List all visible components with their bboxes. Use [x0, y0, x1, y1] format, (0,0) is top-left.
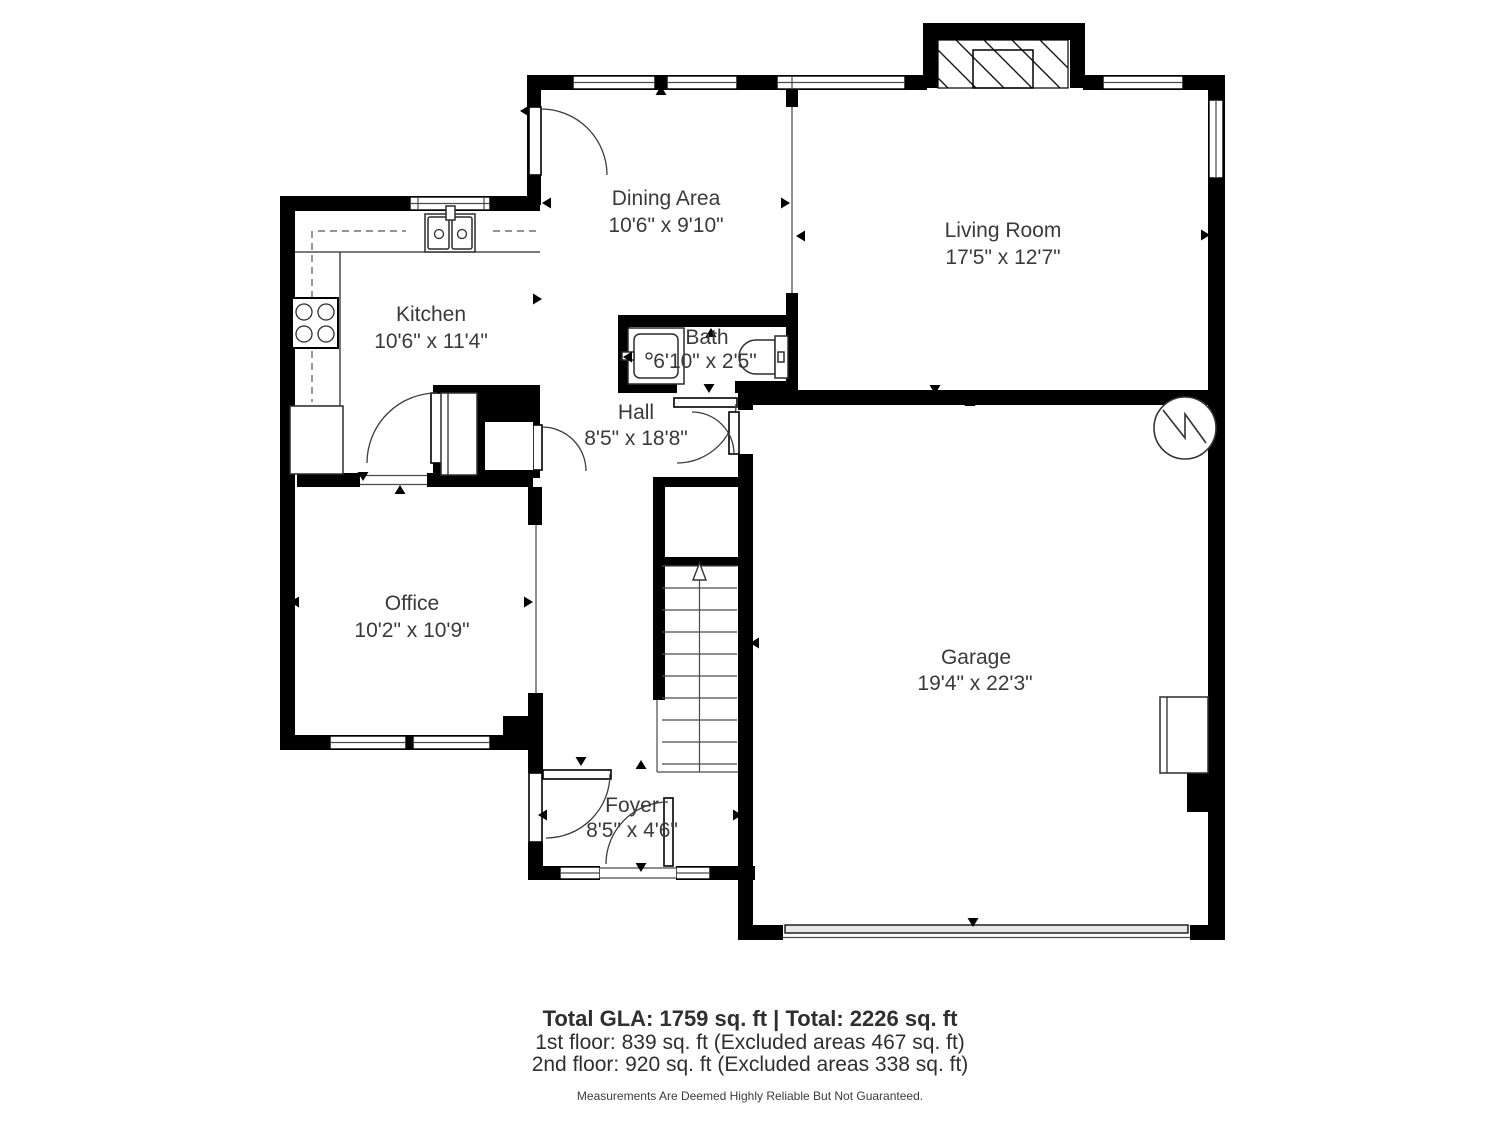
dining-patio-door [529, 107, 607, 175]
room-label-office: Office [385, 592, 439, 615]
garage-service-door [1160, 697, 1208, 773]
floor-plan-page: Dining Area 10'6" x 9'10" Living Room 17… [0, 0, 1500, 1125]
window [1103, 76, 1183, 89]
window [573, 76, 655, 89]
room-dims-kitchen: 10'6" x 11'4" [374, 330, 488, 353]
hall-closet-door [533, 425, 586, 471]
window [330, 736, 406, 749]
sidelite-window [560, 867, 600, 879]
second-floor-area: 2nd floor: 920 sq. ft (Excluded areas 33… [0, 1054, 1500, 1076]
garage-entry-door [692, 412, 739, 454]
kitchen-closet-door [367, 393, 442, 463]
window [667, 76, 737, 89]
room-dims-hall: 8'5" x 18'8" [584, 427, 688, 450]
room-dims-living-room: 17'5" x 12'7" [945, 246, 1060, 269]
room-dims-bath: 6'10" x 2'5" [653, 350, 757, 373]
water-heater-icon [1154, 397, 1216, 459]
room-label-dining-area: Dining Area [612, 187, 721, 210]
window [413, 736, 490, 749]
area-summary: Total GLA: 1759 sq. ft | Total: 2226 sq.… [0, 1006, 1500, 1103]
room-label-garage: Garage [941, 646, 1011, 669]
room-label-kitchen: Kitchen [396, 303, 466, 326]
window [777, 76, 905, 89]
stove-icon [292, 298, 338, 348]
garage-door-icon [783, 925, 1190, 940]
room-label-foyer: Foyer [605, 794, 659, 817]
room-dims-garage: 19'4" x 22'3" [917, 672, 1032, 695]
room-dims-dining-area: 10'6" x 9'10" [608, 214, 723, 237]
room-dims-office: 10'2" x 10'9" [354, 619, 469, 642]
floor-plan-svg: Dining Area 10'6" x 9'10" Living Room 17… [0, 0, 1500, 1125]
first-floor-area: 1st floor: 839 sq. ft (Excluded areas 46… [0, 1032, 1500, 1054]
window [1209, 100, 1223, 178]
disclaimer-text: Measurements Are Deemed Highly Reliable … [0, 1089, 1500, 1103]
room-label-bath: Bath [685, 326, 728, 349]
kitchen-sink-icon [425, 206, 475, 252]
room-dims-foyer: 8'5" x 4'6" [586, 819, 678, 842]
sidelite-window [676, 867, 710, 879]
room-label-living-room: Living Room [945, 219, 1062, 242]
total-area-summary: Total GLA: 1759 sq. ft | Total: 2226 sq.… [0, 1006, 1500, 1032]
room-label-hall: Hall [618, 401, 654, 424]
staircase-up-icon [657, 563, 738, 772]
refrigerator-icon [290, 406, 343, 474]
